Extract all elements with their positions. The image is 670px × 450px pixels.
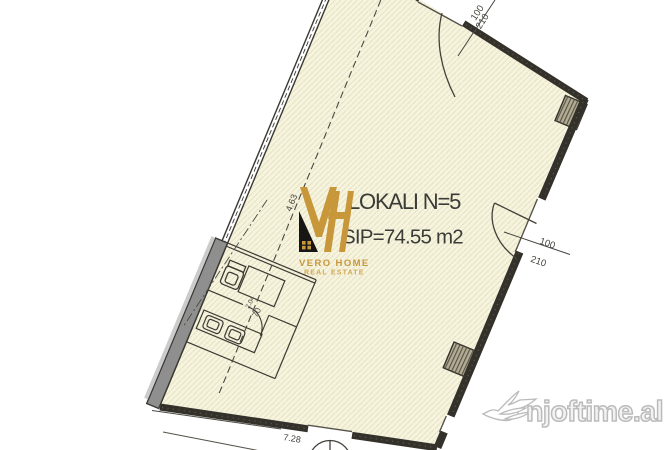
svg-text:7.28: 7.28: [283, 432, 302, 445]
svg-text:100: 100: [538, 236, 557, 252]
svg-text:SIP=74.55 m2: SIP=74.55 m2: [342, 226, 463, 249]
svg-text:VERO HOME: VERO HOME: [299, 258, 370, 269]
svg-text:njoftime.al: njoftime.al: [526, 396, 663, 428]
svg-text:210: 210: [529, 254, 548, 270]
svg-text:REAL ESTATE: REAL ESTATE: [304, 270, 365, 277]
svg-text:LOKALI N=5: LOKALI N=5: [348, 189, 461, 214]
